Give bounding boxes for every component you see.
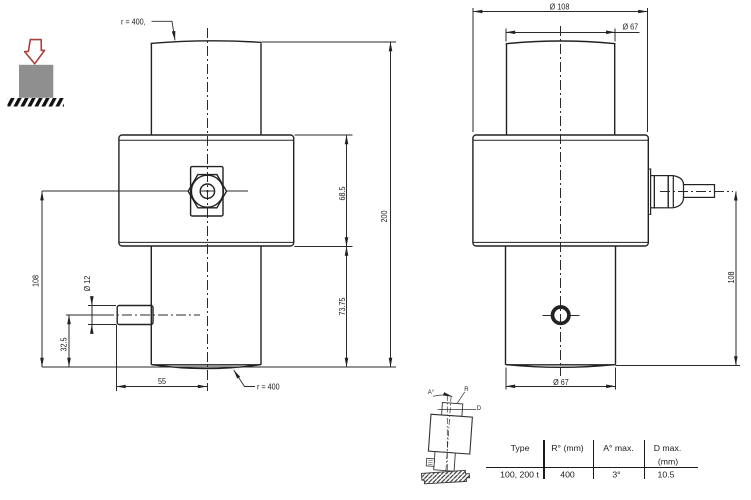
svg-text:r = 400: r = 400 — [257, 382, 280, 392]
svg-text:Type: Type — [511, 443, 530, 453]
svg-text:D max.: D max. — [654, 443, 682, 453]
svg-text:(mm): (mm) — [658, 457, 678, 467]
svg-text:55: 55 — [158, 377, 167, 387]
svg-text:r = 400,: r = 400, — [121, 17, 146, 27]
svg-text:3°: 3° — [612, 470, 620, 480]
svg-text:R: R — [464, 387, 469, 393]
svg-text:200: 200 — [379, 210, 389, 223]
svg-text:10.5: 10.5 — [658, 470, 675, 480]
svg-text:108: 108 — [31, 274, 41, 287]
svg-text:Ø 108: Ø 108 — [550, 2, 570, 12]
svg-text:68.5: 68.5 — [338, 186, 348, 201]
svg-text:100, 200 t: 100, 200 t — [500, 470, 539, 480]
svg-text:A° max.: A° max. — [603, 443, 634, 453]
svg-text:73.75: 73.75 — [338, 297, 348, 316]
svg-text:D: D — [477, 406, 482, 412]
svg-text:400: 400 — [560, 470, 575, 480]
svg-text:Ø 12: Ø 12 — [82, 276, 92, 292]
svg-text:Ø 67: Ø 67 — [553, 377, 569, 387]
svg-text:R° (mm): R° (mm) — [551, 443, 584, 453]
svg-text:A°: A° — [428, 390, 435, 396]
svg-text:32.5: 32.5 — [59, 337, 69, 352]
svg-text:Ø 67: Ø 67 — [622, 22, 638, 32]
svg-text:108: 108 — [726, 271, 736, 284]
